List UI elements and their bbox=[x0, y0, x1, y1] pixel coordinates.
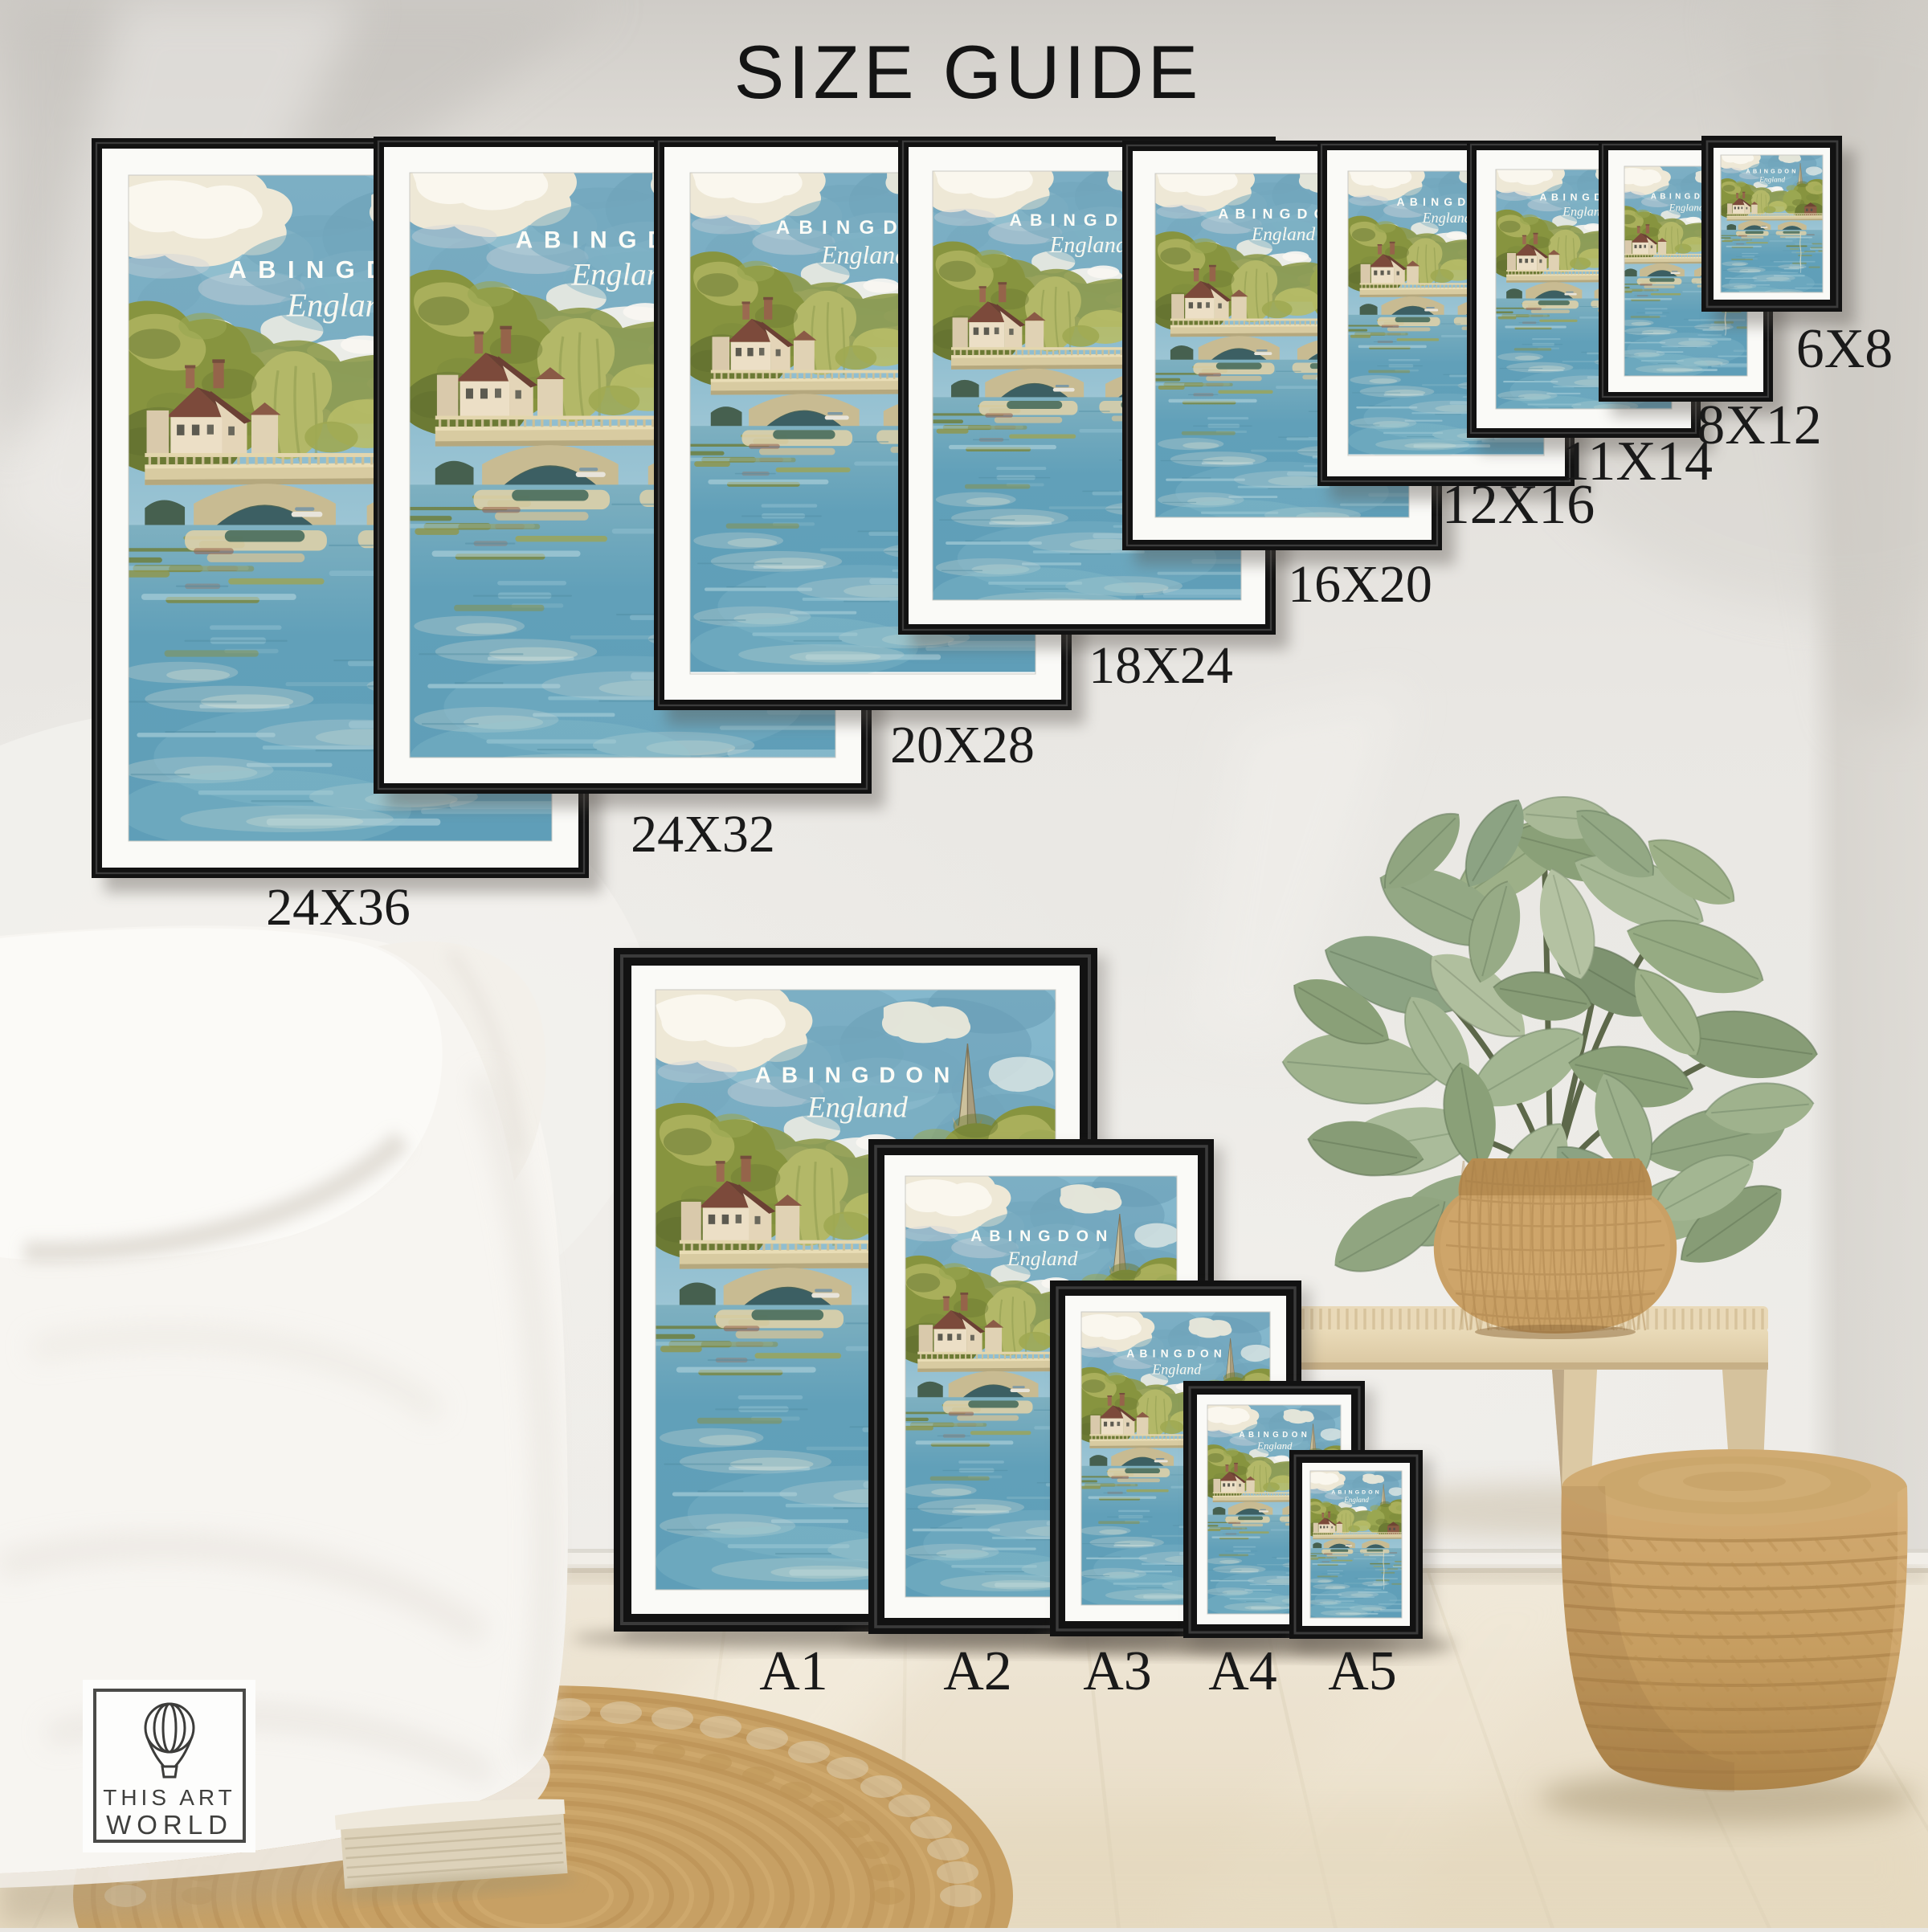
svg-text:SIZE GUIDE: SIZE GUIDE bbox=[734, 30, 1203, 114]
svg-text:A5: A5 bbox=[1328, 1640, 1397, 1702]
svg-text:24X36: 24X36 bbox=[266, 878, 411, 937]
svg-text:6X8: 6X8 bbox=[1796, 318, 1893, 380]
svg-text:20X28: 20X28 bbox=[890, 716, 1035, 774]
svg-text:A2: A2 bbox=[943, 1640, 1012, 1702]
svg-text:A1: A1 bbox=[759, 1640, 828, 1702]
svg-text:16X20: 16X20 bbox=[1288, 555, 1432, 614]
svg-text:11X14: 11X14 bbox=[1562, 431, 1713, 492]
svg-text:WORLD: WORLD bbox=[106, 1810, 233, 1840]
svg-text:THIS ART: THIS ART bbox=[103, 1785, 236, 1810]
svg-text:24X32: 24X32 bbox=[631, 805, 775, 864]
svg-text:18X24: 18X24 bbox=[1089, 636, 1233, 695]
svg-text:A4: A4 bbox=[1208, 1640, 1277, 1702]
svg-text:8X12: 8X12 bbox=[1697, 394, 1822, 456]
svg-text:A3: A3 bbox=[1083, 1640, 1152, 1702]
